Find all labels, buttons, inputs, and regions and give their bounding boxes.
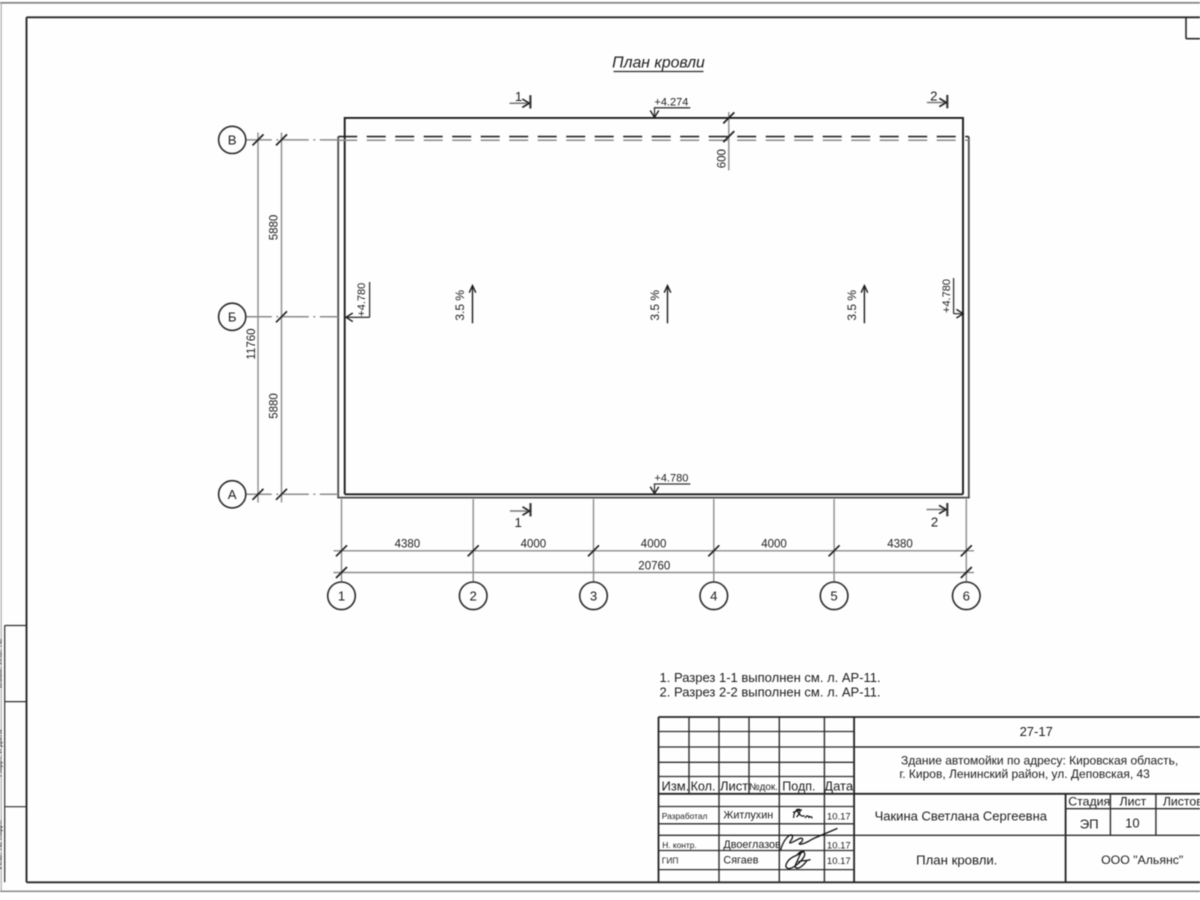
svg-text:27-17: 27-17 (1020, 724, 1053, 739)
svg-text:4000: 4000 (761, 539, 787, 551)
svg-text:3.5 %: 3.5 % (453, 290, 467, 321)
svg-text:6: 6 (963, 589, 970, 604)
svg-text:1. Разрез 1-1 выполнен см. л.: 1. Разрез 1-1 выполнен см. л. АР-11. (660, 670, 881, 685)
svg-text:Чакина Светлана Сергеевна: Чакина Светлана Сергеевна (875, 809, 1048, 824)
svg-text:4380: 4380 (887, 539, 913, 551)
svg-text:4380: 4380 (395, 539, 421, 551)
svg-text:А: А (228, 487, 237, 502)
svg-text:1: 1 (338, 589, 345, 604)
svg-text:10.17: 10.17 (827, 841, 851, 852)
svg-text:ГИП: ГИП (662, 855, 679, 865)
svg-text:+4.780: +4.780 (941, 279, 953, 313)
svg-text:В: В (228, 133, 237, 148)
svg-text:5880: 5880 (269, 393, 281, 419)
svg-text:20760: 20760 (638, 561, 670, 573)
svg-text:Лист: Лист (1120, 795, 1147, 809)
svg-text:3: 3 (590, 589, 597, 604)
svg-text:2: 2 (930, 89, 937, 104)
svg-text:Сягаев: Сягаев (723, 854, 758, 866)
svg-text:Житлухин: Житлухин (723, 810, 773, 822)
svg-text:Н. контр.: Н. контр. (662, 840, 697, 850)
svg-text:11760: 11760 (246, 328, 258, 359)
svg-text:4000: 4000 (521, 539, 547, 551)
svg-text:1: 1 (515, 515, 522, 530)
svg-text:План кровли: План кровли (612, 55, 705, 72)
svg-text:Разработал: Разработал (662, 811, 708, 821)
svg-text:10: 10 (1125, 816, 1139, 831)
svg-text:+4.780: +4.780 (654, 473, 688, 485)
svg-text:4: 4 (710, 589, 717, 604)
svg-text:Инв. № подл.: Инв. № подл. (0, 820, 4, 870)
svg-text:ЭП: ЭП (1080, 816, 1099, 831)
svg-text:2. Разрез 2-2 выполнен см. л.: 2. Разрез 2-2 выполнен см. л. АР-11. (660, 684, 881, 699)
svg-text:Б: Б (228, 310, 237, 325)
svg-text:5: 5 (830, 589, 837, 604)
svg-text:Дата: Дата (824, 779, 854, 794)
svg-text:10.17: 10.17 (827, 856, 851, 867)
svg-text:10.17: 10.17 (827, 812, 851, 823)
svg-text:+4.780: +4.780 (356, 283, 368, 317)
svg-text:г. Киров, Ленинский район, ул.: г. Киров, Ленинский район, ул. Деповская… (899, 767, 1150, 781)
svg-text:План кровли.: План кровли. (916, 852, 997, 867)
svg-text:2: 2 (931, 515, 938, 530)
svg-text:3.5 %: 3.5 % (845, 290, 859, 321)
svg-text:Взам. инв. №: Взам. инв. № (0, 638, 4, 688)
svg-text:2: 2 (470, 589, 477, 604)
svg-text:Двоеглазов: Двоеглазов (723, 839, 781, 851)
svg-text:ООО "Альянс": ООО "Альянс" (1101, 853, 1183, 867)
svg-text:Кол.: Кол. (691, 780, 716, 794)
svg-text:Здание автомойки по адресу: Ки: Здание автомойки по адресу: Кировская об… (901, 754, 1178, 768)
svg-text:Подп.: Подп. (782, 780, 815, 794)
svg-text:5880: 5880 (269, 215, 281, 241)
svg-text:Стадия: Стадия (1068, 795, 1110, 809)
svg-text:1: 1 (515, 89, 522, 104)
svg-text:+4.274: +4.274 (654, 96, 688, 108)
svg-text:Лист: Лист (720, 779, 748, 794)
svg-text:№док.: №док. (749, 782, 778, 793)
svg-text:600: 600 (717, 149, 729, 168)
svg-text:4000: 4000 (641, 539, 667, 551)
svg-text:Подп. и дата: Подп. и дата (0, 729, 4, 777)
svg-text:3.5 %: 3.5 % (648, 290, 662, 321)
svg-text:Изм.: Изм. (662, 779, 690, 794)
svg-text:Листов: Листов (1163, 795, 1200, 809)
